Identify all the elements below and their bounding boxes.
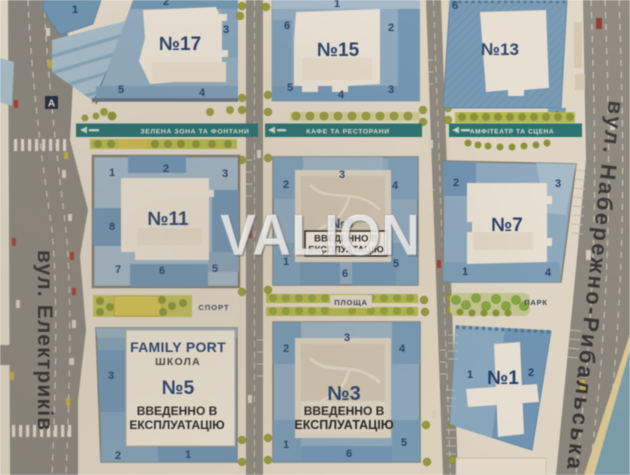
svg-text:VALION: VALION	[220, 203, 420, 268]
